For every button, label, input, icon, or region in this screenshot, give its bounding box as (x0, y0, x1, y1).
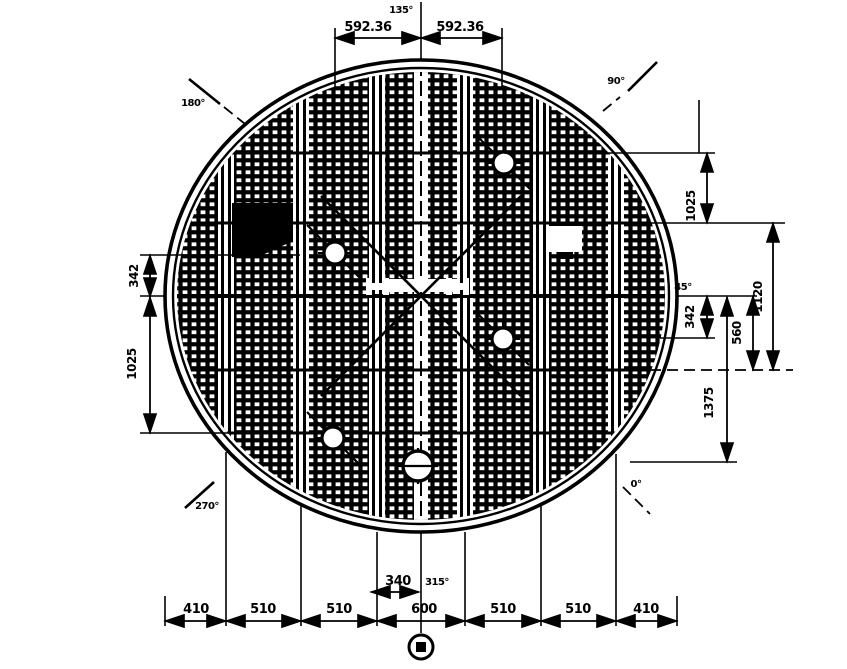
dim-right-1025: 1025 (684, 190, 698, 222)
dim-bottom-600: 600 (411, 602, 437, 617)
dim-right-1375: 1375 (702, 387, 716, 419)
angle-270: 270° (195, 501, 219, 512)
dim-top-right: 592.36 (436, 20, 484, 35)
dim-bottom-510-3: 510 (490, 602, 516, 617)
dim-right-560: 560 (730, 321, 744, 345)
dim-right-342: 342 (683, 305, 697, 329)
dim-bottom-340: 340 (385, 574, 411, 589)
dim-left-342: 342 (127, 264, 141, 288)
dim-bottom-410-right: 410 (633, 602, 659, 617)
angle-90: 90° (607, 76, 625, 87)
technical-drawing-page: 592.36 592.36 1025 1120 560 342 1375 342… (0, 0, 847, 669)
angle-45: 45° (674, 282, 692, 293)
datum-symbol (409, 635, 433, 659)
dim-left-1025: 1025 (125, 348, 139, 380)
angle-135: 135° (389, 5, 413, 16)
dim-bottom-510-4: 510 (565, 602, 591, 617)
dim-top-left: 592.36 (344, 20, 392, 35)
angle-180: 180° (181, 98, 205, 109)
angle-0: 0° (631, 479, 642, 490)
angle-315: 315° (425, 577, 449, 588)
dim-right-1120: 1120 (751, 281, 765, 313)
dim-bottom-410-left: 410 (183, 602, 209, 617)
dim-bottom-510-2: 510 (326, 602, 352, 617)
technical-drawing: 592.36 592.36 1025 1120 560 342 1375 342… (0, 0, 847, 669)
dim-bottom-510-1: 510 (250, 602, 276, 617)
